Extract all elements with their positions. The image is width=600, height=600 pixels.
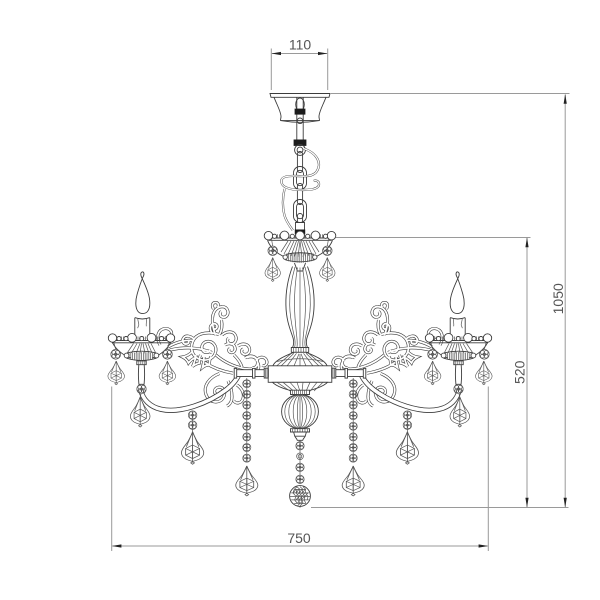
svg-text:110: 110 (289, 37, 312, 53)
svg-text:520: 520 (512, 360, 528, 384)
svg-text:750: 750 (287, 530, 311, 546)
svg-text:1050: 1050 (550, 283, 566, 314)
